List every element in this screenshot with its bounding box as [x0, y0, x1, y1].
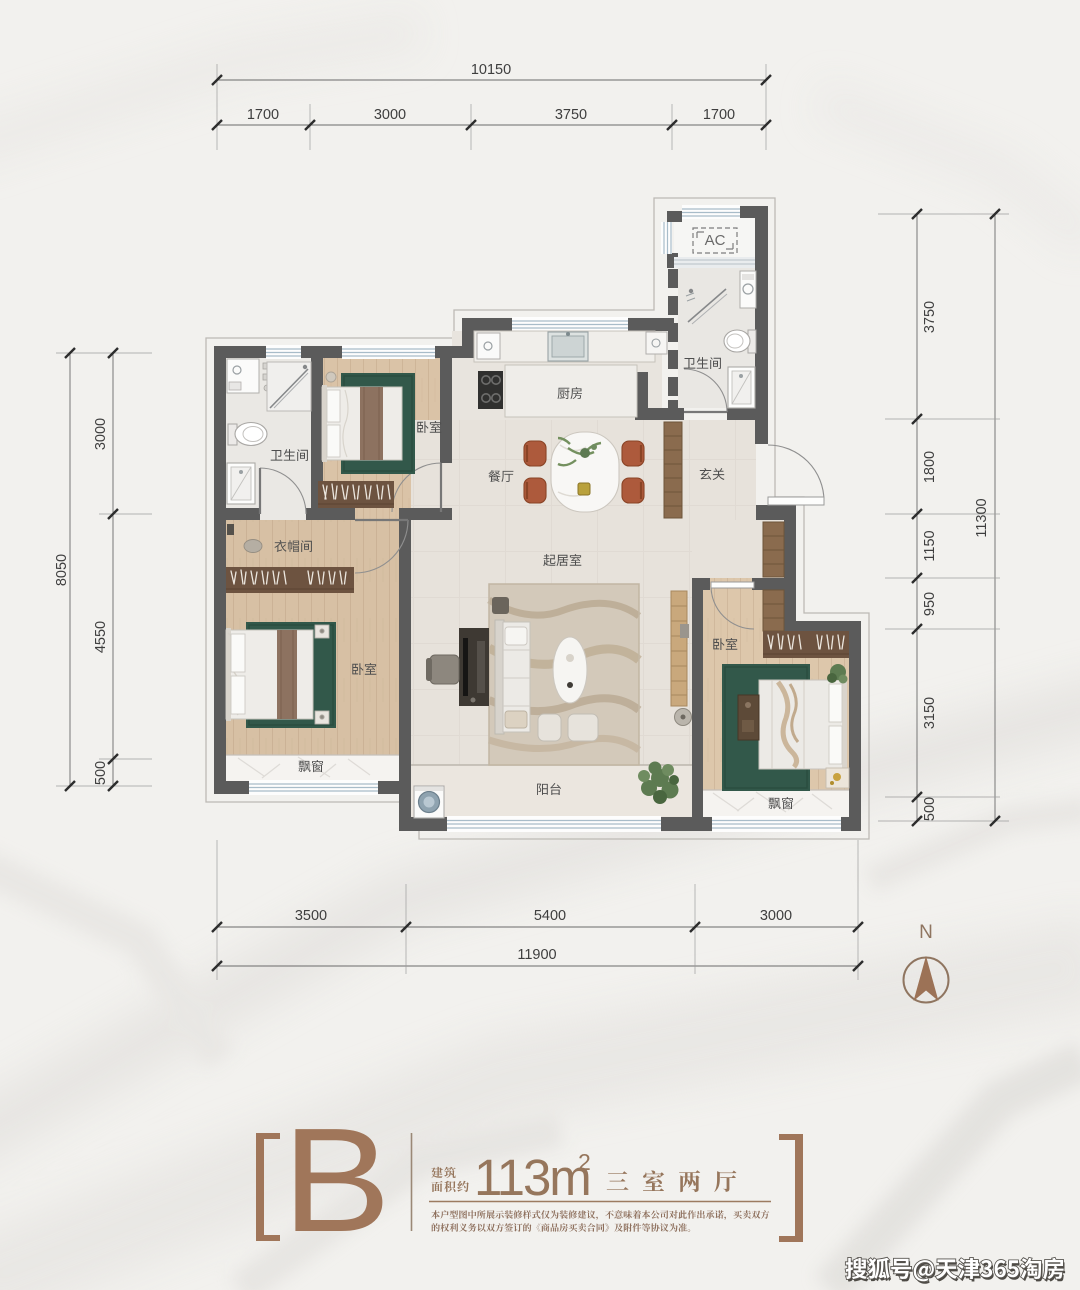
svg-text:113m: 113m	[474, 1149, 590, 1206]
svg-text:3750: 3750	[555, 107, 587, 123]
svg-text:500: 500	[922, 797, 938, 821]
svg-text:11900: 11900	[517, 947, 556, 963]
svg-text:1700: 1700	[703, 107, 735, 123]
svg-text:8050: 8050	[54, 554, 70, 586]
svg-text:3750: 3750	[922, 301, 938, 333]
svg-text:3500: 3500	[295, 908, 327, 924]
svg-text:3000: 3000	[374, 107, 406, 123]
svg-text:950: 950	[922, 592, 938, 616]
svg-text:2: 2	[578, 1149, 591, 1175]
svg-text:1800: 1800	[922, 451, 938, 483]
svg-text:3150: 3150	[922, 697, 938, 729]
svg-text:3000: 3000	[93, 418, 109, 450]
svg-text:5400: 5400	[534, 908, 566, 924]
svg-text:4550: 4550	[93, 621, 109, 653]
svg-text:500: 500	[93, 761, 109, 785]
svg-text:11300: 11300	[974, 498, 990, 537]
svg-text:AC: AC	[705, 232, 726, 249]
svg-text:1150: 1150	[922, 530, 938, 561]
svg-text:3000: 3000	[760, 908, 792, 924]
svg-text:B: B	[282, 1098, 391, 1263]
svg-text:10150: 10150	[471, 62, 511, 78]
svg-text:N: N	[919, 922, 933, 943]
svg-text:1700: 1700	[247, 107, 279, 123]
